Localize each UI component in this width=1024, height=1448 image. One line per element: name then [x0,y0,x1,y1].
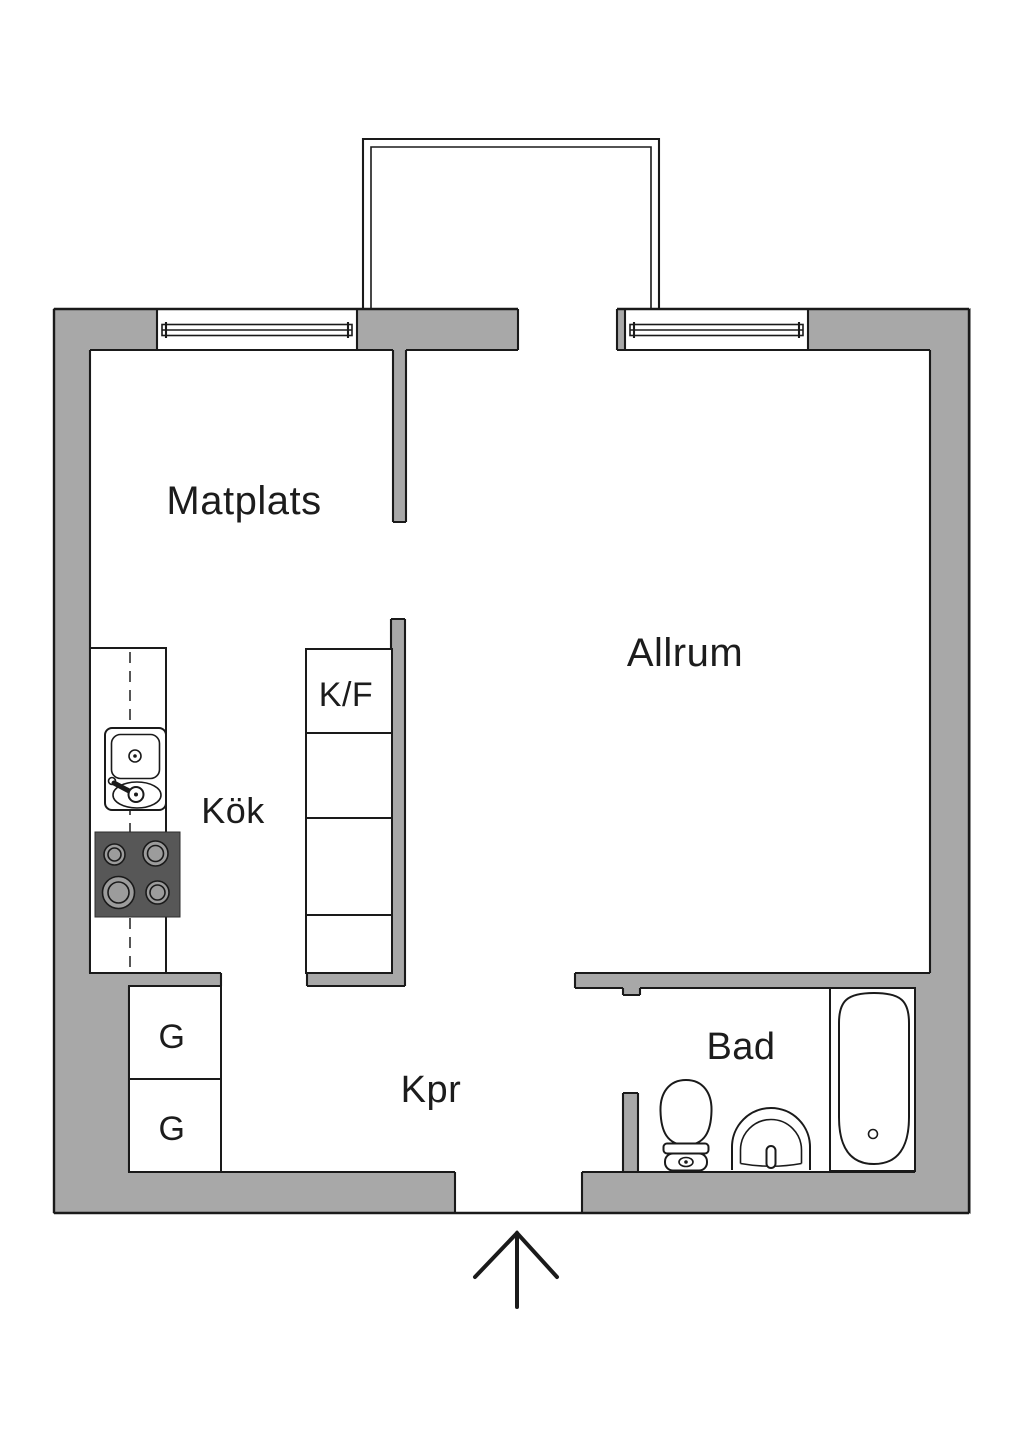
wall-right-bathroom [915,973,971,1172]
washbasin-tap [767,1146,776,1168]
faucet-head-dot [134,793,138,797]
wall-top-left-segment [53,308,157,350]
burner-top-left [104,844,125,865]
room-label-kitchen: Kök [201,790,265,831]
wall-stub-kitchen [391,619,405,986]
balcony-outer-rail [363,139,659,308]
label-wardrobe-2: G [159,1110,186,1148]
window-left [162,322,352,338]
floor-plan-drawing: Matplats Allrum Kök Kpr Bad K/F G G [0,0,1024,1448]
sink-drain-dot [133,754,137,758]
window-right [630,322,803,338]
wall-left-thick [53,986,129,1172]
washbasin-icon [732,1108,810,1170]
wall-fridge-bottom [307,973,405,986]
wall-top-sliver [617,308,625,350]
balcony-inner-rail [371,147,651,308]
floor-plan: Matplats Allrum Kök Kpr Bad K/F G G [0,0,1024,1448]
wall-kitchen-bottom [90,973,221,986]
wall-right [930,350,971,973]
wall-bottom-left [53,1172,455,1214]
wall-top-middle-segment [357,308,518,350]
balcony [363,139,659,308]
wall-left [53,350,90,986]
wall-top-right-segment [808,308,971,350]
toilet-seat-hinge [664,1144,709,1154]
entrance-arrow-icon [475,1233,557,1307]
room-label-dining: Matplats [166,479,321,523]
kitchen-sink-icon [105,728,166,810]
toilet-bowl [660,1080,711,1145]
toilet-icon [660,1080,711,1171]
label-fridge-freezer: K/F [319,676,373,714]
label-wardrobe-1: G [159,1018,186,1056]
room-label-bathroom: Bad [706,1026,775,1068]
stove-icon [95,832,180,917]
toilet-flush-dot [684,1160,688,1164]
wall-stub-upper [393,350,406,522]
wall-bottom-right [582,1172,971,1214]
room-label-living: Allrum [627,631,743,675]
bathtub-icon [830,988,915,1171]
wall-bathroom-top [575,973,930,988]
wall-bathroom-left-stub [623,1093,638,1172]
room-label-hallway: Kpr [401,1069,462,1111]
